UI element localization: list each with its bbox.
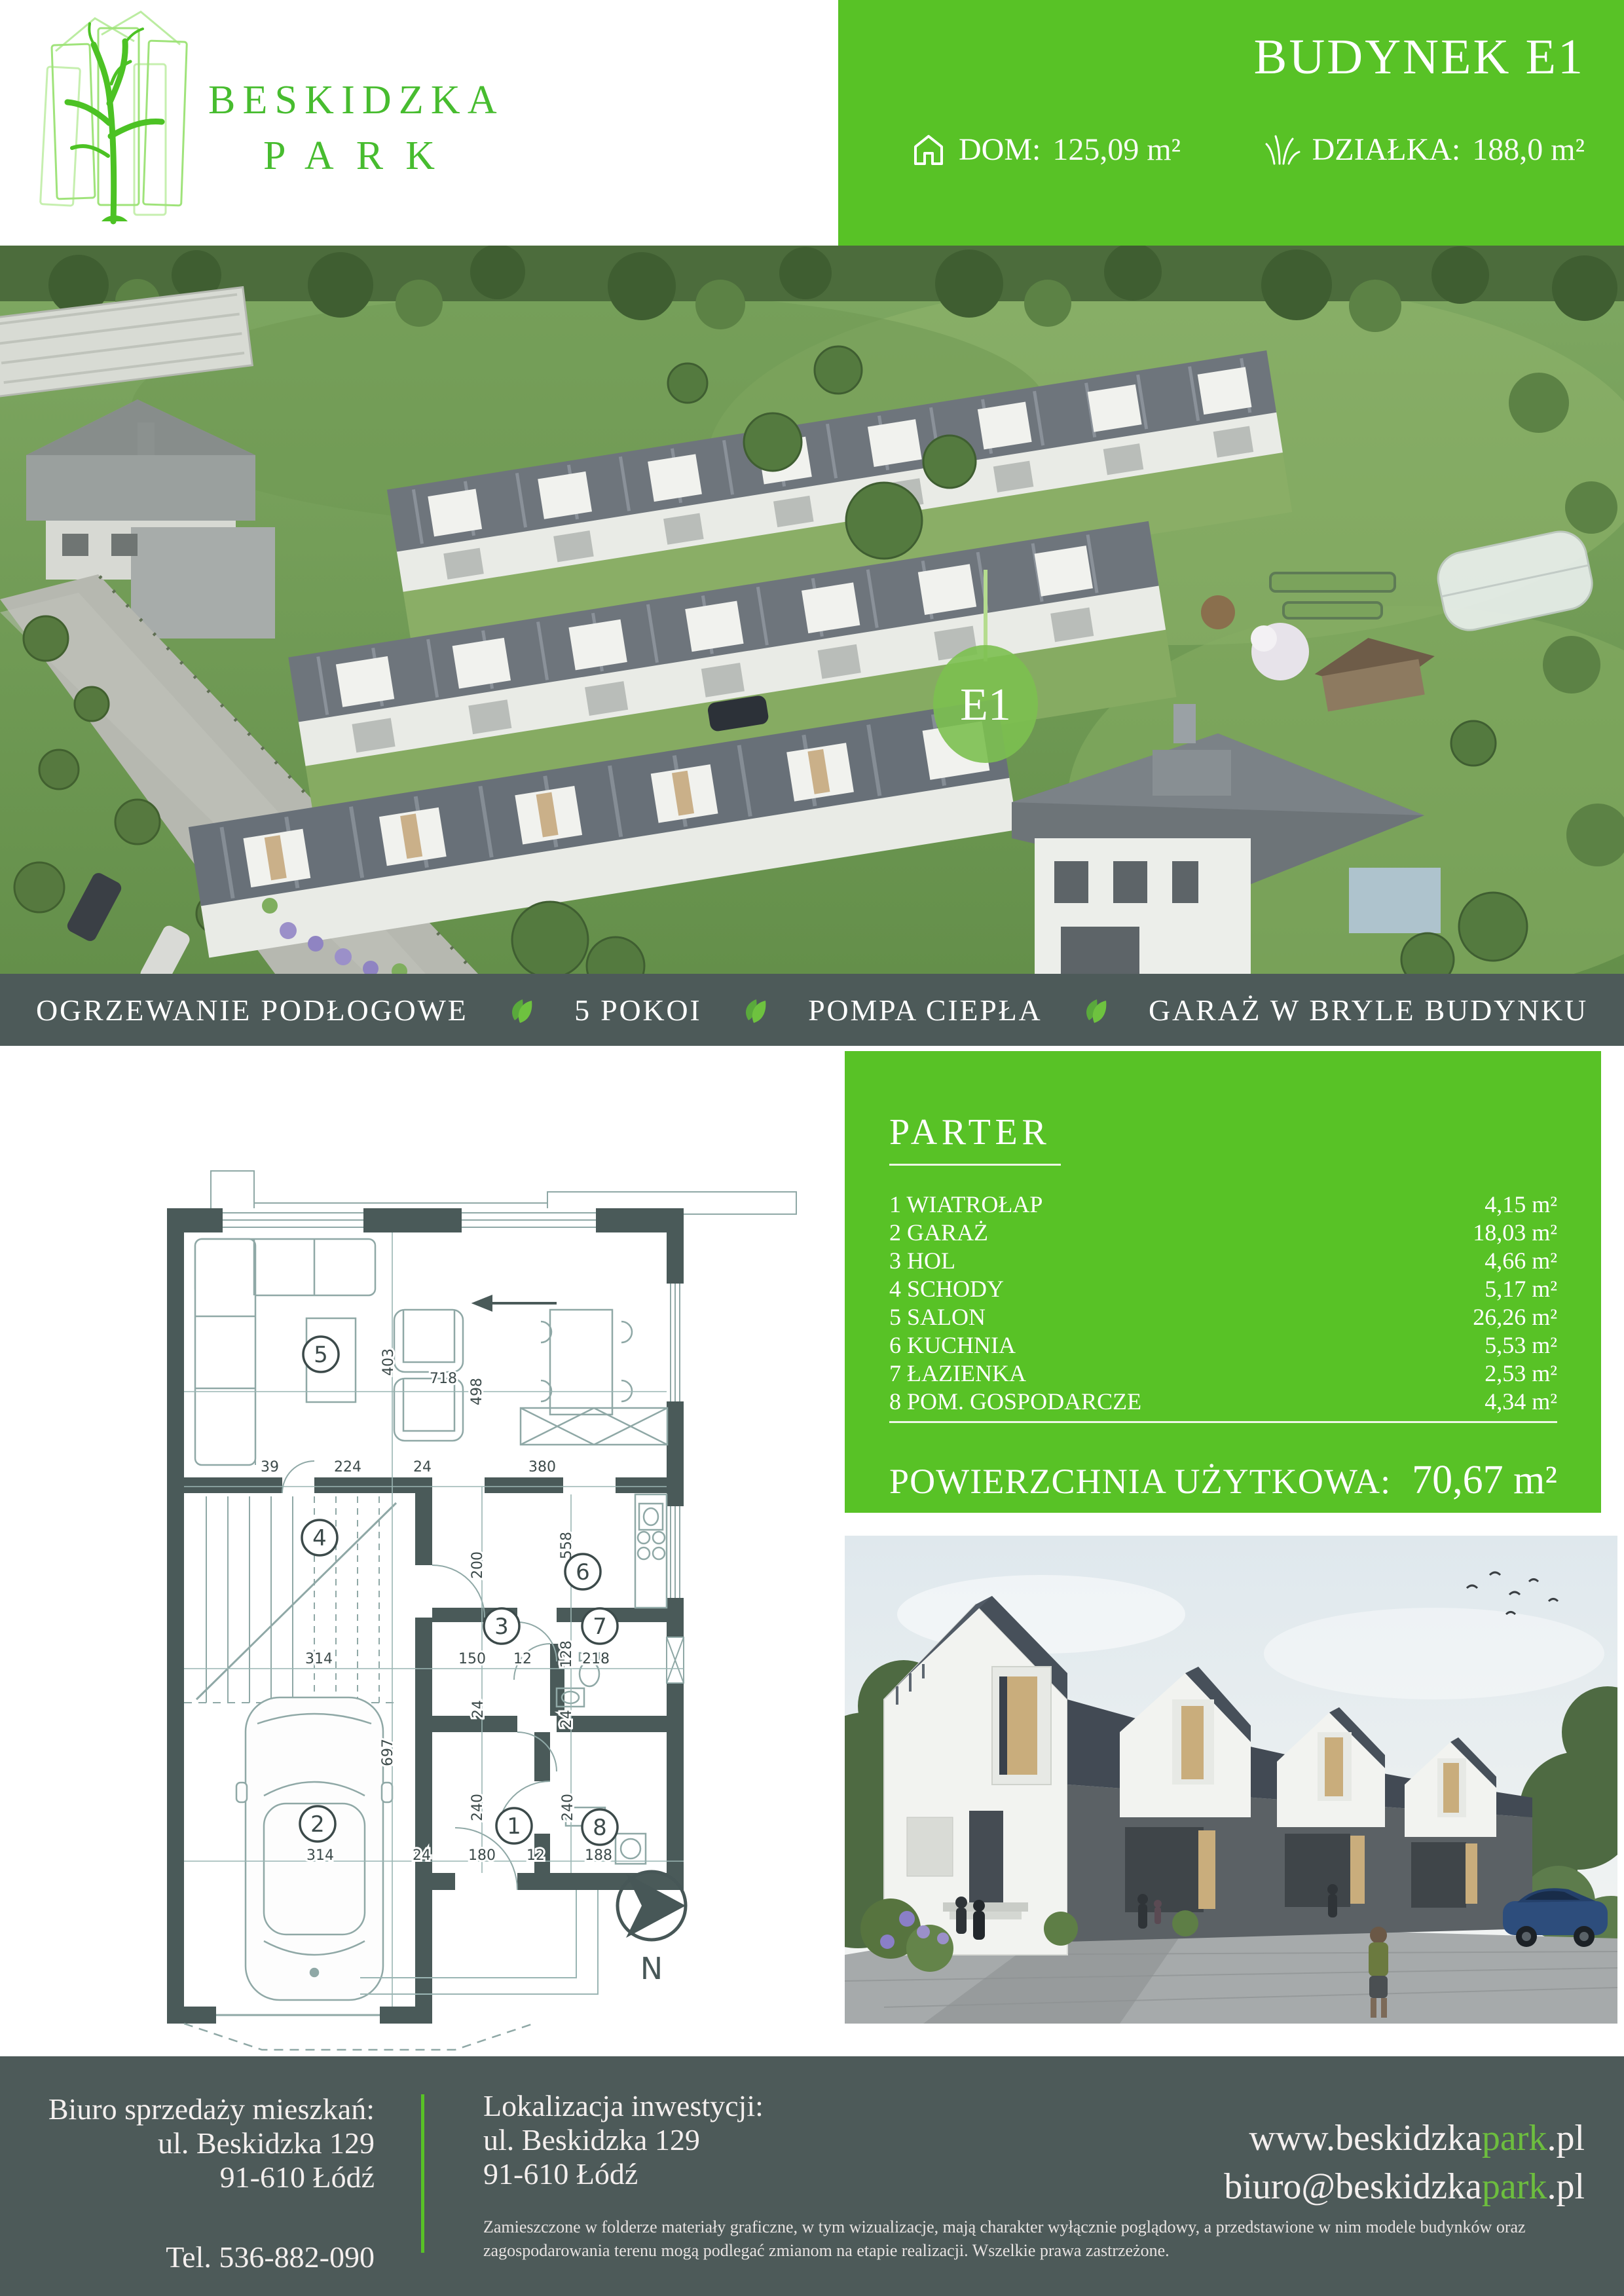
dimension-label: 24 <box>413 1847 431 1864</box>
room-row: 2 GARAŻ18,03 m² <box>889 1219 1557 1247</box>
room-row: 7 ŁAZIENKA2,53 m² <box>889 1360 1557 1388</box>
dimension-label: 24 <box>470 1700 487 1718</box>
room-row: 1 WIATROŁAP4,15 m² <box>889 1191 1557 1219</box>
brand-wordmark: BESKIDZKA PARK <box>208 77 490 179</box>
house-icon <box>910 131 947 168</box>
building-title: BUDYNEK E1 <box>1254 29 1585 86</box>
feature-rooms: 5 POKOI <box>574 993 701 1028</box>
room-row: 3 HOL4,66 m² <box>889 1247 1557 1275</box>
footer: Biuro sprzedaży mieszkań: ul. Beskidzka … <box>0 2056 1624 2296</box>
house-area-value: 125,09 m² <box>1052 132 1181 168</box>
dimension-label: 718 <box>430 1371 457 1387</box>
floor-plan: N 40371849855839224243802001281501221824… <box>98 1113 819 2054</box>
links-block: www.beskidzkapark.pl biuro@beskidzkapark… <box>1224 2114 1585 2211</box>
room-row: 5 SALON26,26 m² <box>889 1303 1557 1331</box>
house-area-label: DOM: <box>959 132 1041 168</box>
features-bar: OGRZEWANIE PODŁOGOWE 5 POKOI POMPA CIEPŁ… <box>0 974 1624 1046</box>
rooms-divider <box>889 1421 1557 1423</box>
floorplan-panel: PARTER 1 WIATROŁAP4,15 m² 2 GARAŻ18,03 m… <box>845 1051 1601 1513</box>
floor-title: PARTER <box>889 1111 1051 1153</box>
dimension-label: 39 <box>261 1459 279 1475</box>
room-marker-number: 7 <box>593 1614 607 1640</box>
svg-text:N: N <box>640 1951 663 1986</box>
room-row: 6 KUCHNIA5,53 m² <box>889 1331 1557 1360</box>
house-area: DOM: 125,09 m² <box>910 131 1181 168</box>
room-marker-number: 4 <box>312 1525 327 1551</box>
plot-area: DZIAŁKA: 188,0 m² <box>1264 131 1585 168</box>
plot-area-value: 188,0 m² <box>1472 132 1585 168</box>
room-marker-number: 1 <box>507 1813 521 1840</box>
dimension-label: 558 <box>559 1532 575 1559</box>
total-row: POWIERZCHNIA UŻYTKOWA: 70,67 m² <box>889 1457 1557 1504</box>
dimension-label: 403 <box>380 1348 397 1376</box>
area-row: DOM: 125,09 m² DZIAŁKA: 188,0 m² <box>910 131 1585 168</box>
total-label: POWIERZCHNIA UŻYTKOWA: <box>889 1461 1391 1502</box>
room-marker-number: 2 <box>310 1811 325 1838</box>
brand-line1: BESKIDZKA <box>208 77 490 124</box>
phone: Tel. 536-882-090 <box>0 2240 375 2274</box>
dimension-label: 24 <box>413 1459 432 1475</box>
footer-divider <box>421 2094 424 2253</box>
dimension-label: 314 <box>306 1847 334 1864</box>
header: BESKIDZKA PARK BUDYNEK E1 DOM: 125,09 m² <box>0 0 1624 246</box>
feature-garage: GARAŻ W BRYLE BUDYNKU <box>1149 993 1588 1028</box>
dimension-label: 24 <box>559 1710 575 1728</box>
title-rule <box>889 1164 1061 1166</box>
room-marker-number: 5 <box>314 1342 328 1368</box>
dimension-label: 128 <box>559 1640 575 1668</box>
room-list: 1 WIATROŁAP4,15 m² 2 GARAŻ18,03 m² 3 HOL… <box>889 1191 1557 1416</box>
sales-office-title: Biuro sprzedaży mieszkań: <box>0 2092 375 2126</box>
dimension-label: 224 <box>334 1459 361 1475</box>
feature-heat-pump: POMPA CIEPŁA <box>808 993 1042 1028</box>
aerial-photo: E1 <box>0 246 1624 974</box>
brochure-page: BESKIDZKA PARK BUDYNEK E1 DOM: 125,09 m² <box>0 0 1624 2296</box>
room-row: 8 POM. GOSPODARCZE4,34 m² <box>889 1388 1557 1416</box>
website-link[interactable]: www.beskidzkapark.pl <box>1224 2114 1585 2162</box>
sales-office-city: 91-610 Łódź <box>0 2160 375 2194</box>
brand-line2: PARK <box>208 133 490 179</box>
room-marker-number: 6 <box>576 1559 590 1585</box>
dimension-label: 697 <box>380 1739 396 1766</box>
location-city: 91-610 Łódź <box>483 2157 764 2191</box>
plot-area-label: DZIAŁKA: <box>1312 132 1461 168</box>
sales-office-block: Biuro sprzedaży mieszkań: ul. Beskidzka … <box>0 2092 375 2194</box>
room-marker-number: 3 <box>494 1614 509 1640</box>
feature-floor-heating: OGRZEWANIE PODŁOGOWE <box>36 993 468 1028</box>
sales-office-street: ul. Beskidzka 129 <box>0 2126 375 2160</box>
dimension-label: 180 <box>468 1847 496 1864</box>
dimension-label: 218 <box>582 1651 610 1667</box>
grass-icon <box>1264 131 1301 168</box>
leaf-icon <box>507 994 536 1026</box>
dimension-label: 150 <box>458 1651 486 1667</box>
location-street: ul. Beskidzka 129 <box>483 2123 764 2157</box>
svg-text:E1: E1 <box>960 680 1011 730</box>
dimension-label: 240 <box>470 1794 486 1821</box>
leaf-icon <box>1081 994 1110 1026</box>
room-marker-number: 8 <box>593 1815 607 1841</box>
dimension-label: 200 <box>470 1551 486 1579</box>
dimension-label: 12 <box>513 1651 532 1667</box>
dimension-label: 314 <box>305 1651 333 1667</box>
location-title: Lokalizacja inwestycji: <box>483 2089 764 2123</box>
render-image <box>845 1536 1617 2024</box>
total-value: 70,67 m² <box>1412 1457 1557 1504</box>
disclaimer: Zamieszczone w folderze materiały grafic… <box>483 2215 1596 2263</box>
header-green-block: BUDYNEK E1 DOM: 125,09 m² <box>838 0 1624 246</box>
location-block: Lokalizacja inwestycji: ul. Beskidzka 12… <box>483 2089 764 2191</box>
logo-tree-icon <box>36 5 200 228</box>
email-link[interactable]: biuro@beskidzkapark.pl <box>1224 2162 1585 2211</box>
dimension-label: 240 <box>560 1794 576 1821</box>
room-row: 4 SCHODY5,17 m² <box>889 1275 1557 1303</box>
leaf-icon <box>741 994 769 1026</box>
dimension-label: 498 <box>469 1378 485 1405</box>
dimension-label: 12 <box>526 1847 545 1864</box>
dimension-label: 380 <box>528 1459 556 1475</box>
dimension-label: 188 <box>585 1847 612 1864</box>
